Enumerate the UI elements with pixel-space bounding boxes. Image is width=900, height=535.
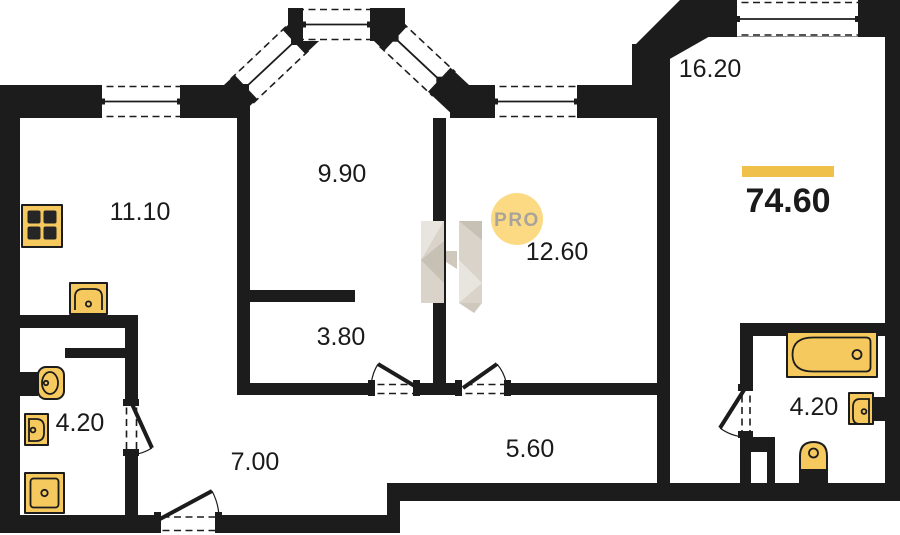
washbasin-icon — [849, 393, 885, 424]
total-area-accent-bar — [742, 166, 834, 177]
area-label-hallway: 7.00 — [231, 448, 280, 476]
door-bathroom-right — [720, 384, 753, 441]
toilet-icon — [799, 442, 828, 483]
area-label-bay-room: 9.90 — [318, 160, 367, 188]
floor-plan: PRO 11.10 9.90 16.20 12.60 3.80 4.20 7.0… — [0, 0, 900, 535]
toilet-icon — [20, 367, 64, 399]
washbasin-icon — [25, 414, 48, 445]
area-label-room: 12.60 — [526, 238, 589, 266]
kitchen-sink-icon — [70, 283, 107, 314]
pro-badge-label: PRO — [494, 210, 540, 231]
stove-icon — [22, 205, 62, 247]
area-label-corridor: 5.60 — [506, 435, 555, 463]
area-label-inner-corridor: 3.80 — [317, 323, 366, 351]
area-label-bathroom-right: 4.20 — [790, 393, 839, 421]
floor-plan-drawing: PRO 11.10 9.90 16.20 12.60 3.80 4.20 7.0… — [0, 0, 900, 535]
total-area: 74.60 — [742, 166, 834, 220]
total-area-label: 74.60 — [745, 182, 830, 220]
bathtub-icon — [787, 332, 877, 377]
area-label-kitchen: 11.10 — [110, 198, 171, 226]
area-label-bathroom-left: 4.20 — [56, 409, 105, 437]
door-bathroom-left — [123, 396, 152, 458]
area-label-bedroom: 16.20 — [679, 55, 742, 83]
shower-icon — [25, 473, 64, 513]
